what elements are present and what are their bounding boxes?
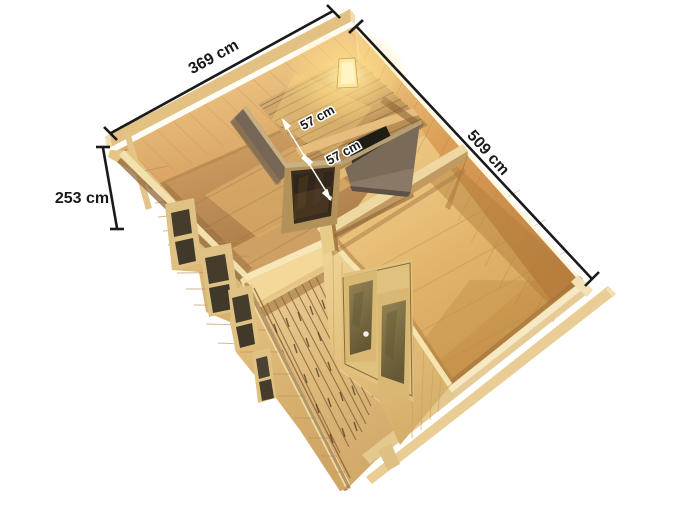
svg-text:253 cm: 253 cm	[55, 190, 109, 207]
